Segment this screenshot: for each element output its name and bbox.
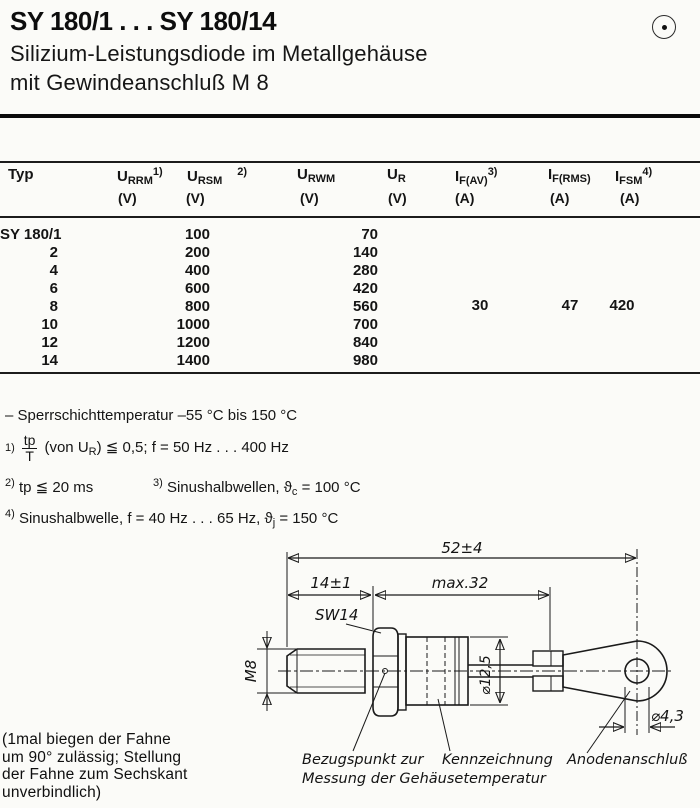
title-rule: [0, 114, 700, 118]
cell-typ: 14: [0, 352, 58, 369]
cell-urrm: 1000: [110, 316, 210, 333]
cell-urwm: 70: [270, 226, 378, 243]
cell-urrm: 800: [110, 298, 210, 315]
cell-urwm: 280: [270, 262, 378, 279]
circled-dot-icon: [652, 15, 676, 39]
marking-leader-line: [438, 699, 450, 751]
page-subtitle-line2: mit Gewindeanschluß M 8: [10, 70, 269, 96]
cell-urrm: 100: [110, 226, 210, 243]
reference-leader-line: [353, 673, 385, 751]
footnote-temperature: – Sperrschichttemperatur –55 °C bis 150 …: [5, 407, 297, 424]
footnote-1-text: (von UR) ≦ 0,5; f = 50 Hz . . . 400 Hz: [44, 438, 288, 458]
cell-typ: 8: [0, 298, 58, 315]
table-row: SY 180/110070: [0, 226, 700, 244]
dimension-d43-label: ⌀4,3: [651, 707, 684, 725]
outline-hex-nut: [373, 628, 398, 716]
anode-leader-line: [587, 691, 630, 753]
cell-typ: 4: [0, 262, 58, 279]
cell-urwm: 420: [270, 280, 378, 297]
shared-ifav-value: 30: [460, 297, 500, 314]
col-header-ifsm: IFSM4): [615, 166, 652, 187]
bend-note: (1mal biegen der Fahne um 90° zulässig; …: [2, 731, 262, 801]
cell-typ: 6: [0, 280, 58, 297]
cell-urwm: 560: [270, 298, 378, 315]
cell-urwm: 700: [270, 316, 378, 333]
unit-urwm: (V): [300, 190, 319, 206]
col-header-typ: Typ: [8, 166, 34, 183]
unit-ur: (V): [388, 190, 407, 206]
footnote-1: 1) tp T (von UR) ≦ 0,5; f = 50 Hz . . . …: [5, 433, 289, 463]
table-bottom-rule: [0, 372, 700, 374]
footnote-2-3: 2) tp ≦ 20 ms 3) Sinushalbwellen, ϑc = 1…: [5, 477, 93, 496]
cell-urwm: 980: [270, 352, 378, 369]
crimp-sleeve-top: [533, 651, 563, 666]
col-header-urwm: URWM: [297, 166, 335, 185]
crimp-fill-top: [551, 651, 563, 666]
col-header-ifrms: IF(RMS): [548, 166, 591, 185]
cell-urrm: 1400: [110, 352, 210, 369]
unit-urrm: (V): [118, 190, 137, 206]
cell-urwm: 840: [270, 334, 378, 351]
cell-typ: 12: [0, 334, 58, 351]
table-row: 8800560: [0, 298, 700, 316]
callout-anode-connection: Anodenanschluß: [567, 751, 687, 770]
cell-typ: SY 180/1: [0, 226, 58, 243]
datasheet-page: SY 180/1 . . . SY 180/14 Silizium-Leistu…: [0, 0, 700, 808]
cell-urwm: 140: [270, 244, 378, 261]
cell-typ: 2: [0, 244, 58, 261]
fraction-tp-T: tp T: [22, 433, 38, 463]
unit-ifav: (A): [455, 190, 474, 206]
dimension-d125-label: ⌀12,5: [478, 655, 494, 695]
footnote-1-marker: 1): [5, 442, 15, 454]
shared-ifsm-value: 420: [598, 297, 646, 314]
col-header-ur: UR: [387, 166, 406, 185]
table-row: 2200140: [0, 244, 700, 262]
callout-marking: Kennzeichnung: [442, 751, 553, 770]
footnote-2: 2) tp ≦ 20 ms: [5, 479, 93, 496]
unit-ifrms: (A): [550, 190, 569, 206]
table-row: 4400280: [0, 262, 700, 280]
table-row: 141400980: [0, 352, 700, 370]
dimension-max32-label: max.32: [432, 574, 489, 592]
table-top-rule: [0, 161, 700, 163]
page-subtitle-line1: Silizium-Leistungsdiode im Metallgehäuse: [10, 41, 428, 67]
col-header-ursm: URSM2): [187, 166, 247, 187]
dimension-14-label: 14±1: [310, 574, 351, 592]
table-row: 101000700: [0, 316, 700, 334]
page-title: SY 180/1 . . . SY 180/14: [10, 6, 276, 37]
crimp-sleeve-bottom: [533, 676, 563, 691]
cell-urrm: 200: [110, 244, 210, 261]
table-header-rule: [0, 216, 700, 218]
cell-urrm: 1200: [110, 334, 210, 351]
shared-ifrms-value: 47: [550, 297, 590, 314]
footnote-3: 3) Sinushalbwellen, ϑc = 100 °C: [153, 477, 361, 498]
wrench-size-label: SW14: [315, 606, 358, 624]
unit-ifsm: (A): [620, 190, 639, 206]
col-header-ifav: IF(AV)3): [455, 166, 497, 187]
cell-urrm: 600: [110, 280, 210, 297]
thread-size-label: M8: [242, 660, 260, 683]
table-row: 6600420: [0, 280, 700, 298]
circled-dot-center: [662, 25, 667, 30]
unit-ursm: (V): [186, 190, 205, 206]
cell-typ: 10: [0, 316, 58, 333]
crimp-fill-bottom: [551, 676, 563, 691]
cell-urrm: 400: [110, 262, 210, 279]
col-header-urrm: URRM1): [117, 166, 163, 187]
footnote-4: 4) Sinushalbwelle, f = 40 Hz . . . 65 Hz…: [5, 508, 338, 529]
dimension-52-label: 52±4: [441, 539, 482, 557]
outline-flange: [398, 634, 406, 710]
table-row: 121200840: [0, 334, 700, 352]
